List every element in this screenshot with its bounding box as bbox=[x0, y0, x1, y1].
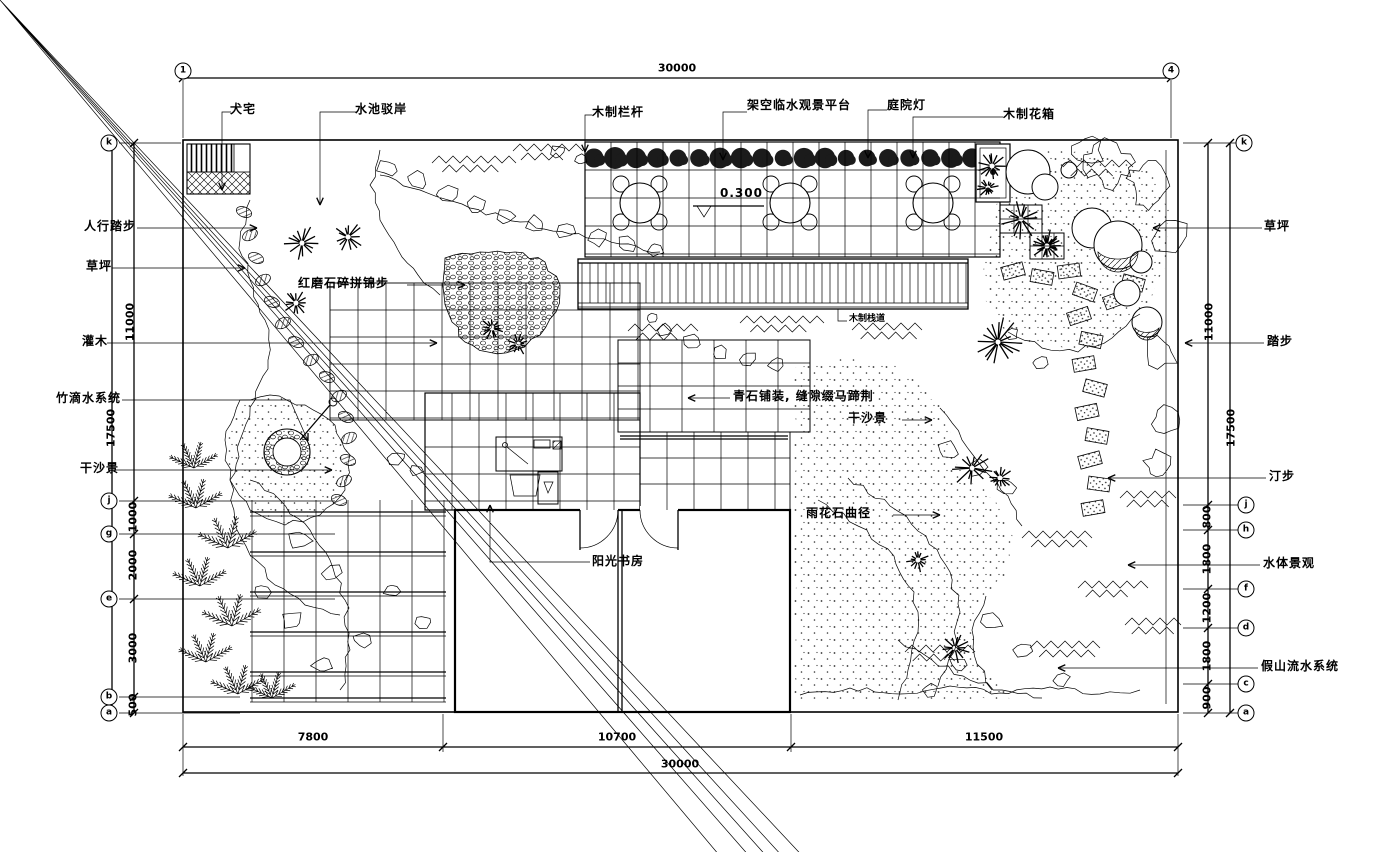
grid-bubble-right-j: j bbox=[1238, 497, 1255, 514]
dim-right-seg-4: 1800 bbox=[1202, 641, 1213, 672]
dim-right-overall: 17500 bbox=[1226, 409, 1237, 447]
dim-right-upper: 11000 bbox=[1204, 303, 1215, 341]
dim-left-seg-3: 3000 bbox=[128, 633, 139, 664]
level-mark: 0.300 bbox=[720, 187, 763, 199]
callout-dog-house: 犬宅 bbox=[230, 103, 256, 115]
grid-bubble-1: 1 bbox=[175, 63, 192, 80]
grid-bubble-right-c: c bbox=[1238, 676, 1255, 693]
site-plan-drawing bbox=[0, 0, 1398, 852]
callout-sun-study: 阳光书房 bbox=[592, 555, 644, 567]
grid-bubble-left-k: k bbox=[101, 135, 118, 152]
callout-dry-sand-inner: 干沙景 bbox=[848, 412, 887, 424]
grid-bubble-left-b: b bbox=[101, 689, 118, 706]
callout-stepping-stones: 汀步 bbox=[1269, 470, 1295, 482]
dim-bottom-3: 11500 bbox=[965, 732, 1003, 743]
dim-left-seg-1: 1000 bbox=[128, 502, 139, 533]
dim-right-seg-3: 1200 bbox=[1202, 593, 1213, 624]
callout-dry-sand-left: 干沙景 bbox=[80, 462, 119, 474]
grid-bubble-right-a: a bbox=[1238, 705, 1255, 722]
callout-water-feature: 水体景观 bbox=[1263, 557, 1315, 569]
dim-right-seg-1: 800 bbox=[1202, 506, 1213, 529]
callout-shrubs: 灌木 bbox=[82, 335, 108, 347]
callout-wood-planter-box: 木制花箱 bbox=[1003, 108, 1055, 120]
callout-wood-railing: 木制栏杆 bbox=[592, 106, 644, 118]
callout-lawn-left: 草坪 bbox=[86, 260, 112, 272]
dim-right-seg-2: 1800 bbox=[1202, 544, 1213, 575]
callout-bluestone-paving: 青石铺装, 缝隙缀马蹄荆 bbox=[733, 390, 874, 402]
callout-pool-revetment: 水池驳岸 bbox=[355, 103, 407, 115]
grid-bubble-right-k: k bbox=[1236, 135, 1253, 152]
grid-bubble-left-g: g bbox=[101, 526, 118, 543]
grid-bubble-right-d: d bbox=[1238, 620, 1255, 637]
grid-bubble-left-e: e bbox=[101, 591, 118, 608]
grid-bubble-left-j: j bbox=[101, 493, 118, 510]
callout-foot-steps: 人行踏步 bbox=[84, 220, 136, 232]
callout-red-stone-paving: 红磨石碎拼锦步 bbox=[298, 277, 389, 289]
callout-bamboo-drip: 竹滴水系统 bbox=[56, 392, 121, 404]
dim-bottom-1: 7800 bbox=[298, 732, 329, 743]
callout-lawn-right: 草坪 bbox=[1264, 220, 1290, 232]
dim-top-total: 30000 bbox=[658, 63, 696, 74]
callout-waterside-deck: 架空临水观景平台 bbox=[747, 99, 851, 111]
callout-courtyard-lamp: 庭院灯 bbox=[887, 99, 926, 111]
callout-steps-right: 踏步 bbox=[1267, 335, 1293, 347]
dim-left-seg-2: 2000 bbox=[128, 550, 139, 581]
grid-bubble-right-h: h bbox=[1238, 522, 1255, 539]
garden-plan-canvas: 犬宅 水池驳岸 木制栏杆 架空临水观景平台 庭院灯 木制花箱 人行踏步 草坪 灌… bbox=[0, 0, 1398, 852]
dim-left-overall: 17500 bbox=[106, 409, 117, 447]
dim-left-seg-4: 500 bbox=[128, 694, 139, 717]
grid-bubble-4: 4 bbox=[1163, 63, 1180, 80]
callout-wood-boardwalk: 木制栈道 bbox=[849, 315, 885, 324]
dim-right-seg-5: 900 bbox=[1202, 687, 1213, 710]
grid-bubble-right-f: f bbox=[1238, 581, 1255, 598]
callout-pebble-path: 雨花石曲径 bbox=[806, 507, 871, 519]
callout-rockery-stream: 假山流水系统 bbox=[1261, 660, 1339, 672]
grid-bubble-left-a: a bbox=[101, 705, 118, 722]
dim-bottom-2: 10700 bbox=[598, 732, 636, 743]
dim-left-upper: 11000 bbox=[125, 303, 136, 341]
dim-bottom-total: 30000 bbox=[661, 759, 699, 770]
